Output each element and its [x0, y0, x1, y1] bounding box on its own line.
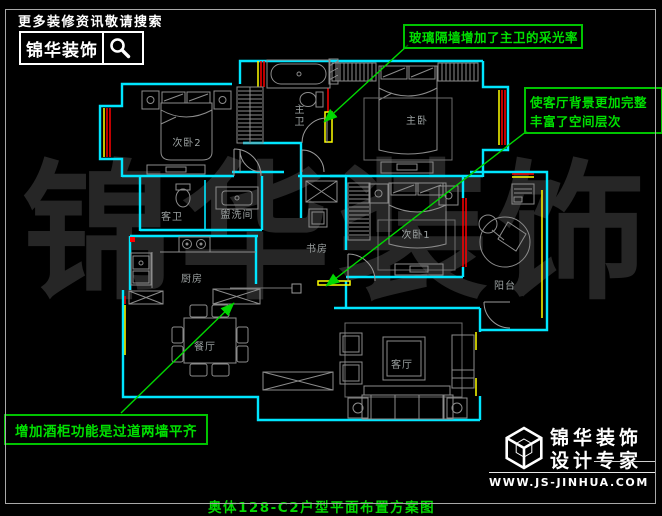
brand-search-box: 锦华装饰: [19, 31, 144, 65]
balcony-furniture: [479, 184, 534, 267]
hallway-marks: [230, 284, 301, 293]
annotation-cabinet-text: 增加酒柜功能是过道两墙平齐: [10, 420, 202, 440]
room-label-balcony: 阳台: [494, 277, 516, 292]
living-furniture: [340, 323, 474, 419]
slogan-accent-line: [594, 461, 656, 462]
annotation-bg-line1: 使客厅背景更加完整: [530, 92, 657, 111]
room-label-washroom: 盥洗间: [221, 206, 254, 221]
floorplan-page: { "header": { "tagline": "更多装修资讯敬请搜索", "…: [0, 0, 662, 510]
brand-name: 锦华装饰: [21, 36, 102, 61]
footer-slogan: 设计专家: [550, 446, 642, 473]
room-label-living: 客厅: [391, 356, 413, 371]
annotation-wine-cabinet: 增加酒柜功能是过道两墙平齐: [4, 414, 208, 445]
footer-divider: [489, 472, 656, 473]
room-label-dining: 餐厅: [194, 338, 216, 353]
master-bedroom-furniture: [332, 63, 478, 173]
cube-logo-icon: [503, 426, 545, 476]
windows: [104, 61, 542, 396]
search-icon: [104, 36, 136, 60]
room-label-study: 书房: [306, 240, 328, 255]
annotation-glass-text: 玻璃隔墙增加了主卫的采光率: [409, 27, 577, 46]
header-tagline: 更多装修资讯敬请搜索: [18, 11, 163, 30]
annotation-living-background: 使客厅背景更加完整 丰富了空间层次: [524, 87, 662, 134]
room-label-guest-bath: 客卫: [161, 208, 183, 223]
room-label-master-bath: 主卫: [290, 104, 305, 128]
doors: [234, 118, 510, 328]
drawing-title: 奥体128-C2户型平面布置方案图: [208, 496, 435, 516]
footer-website: WWW.JS-JINHUA.COM: [489, 476, 649, 489]
room-label-master-bedroom: 主卧: [406, 112, 428, 127]
room-label-bedroom2: 次卧2: [172, 134, 201, 149]
annotation-bg-line2: 丰富了空间层次: [530, 111, 657, 130]
leader-living-background: [326, 131, 527, 286]
annotation-glass-partition: 玻璃隔墙增加了主卫的采光率: [403, 24, 583, 49]
room-label-kitchen: 厨房: [181, 270, 203, 285]
room-label-bedroom1: 次卧1: [401, 226, 430, 241]
bedroom2-furniture: [142, 87, 263, 174]
study-furniture: [306, 181, 370, 240]
